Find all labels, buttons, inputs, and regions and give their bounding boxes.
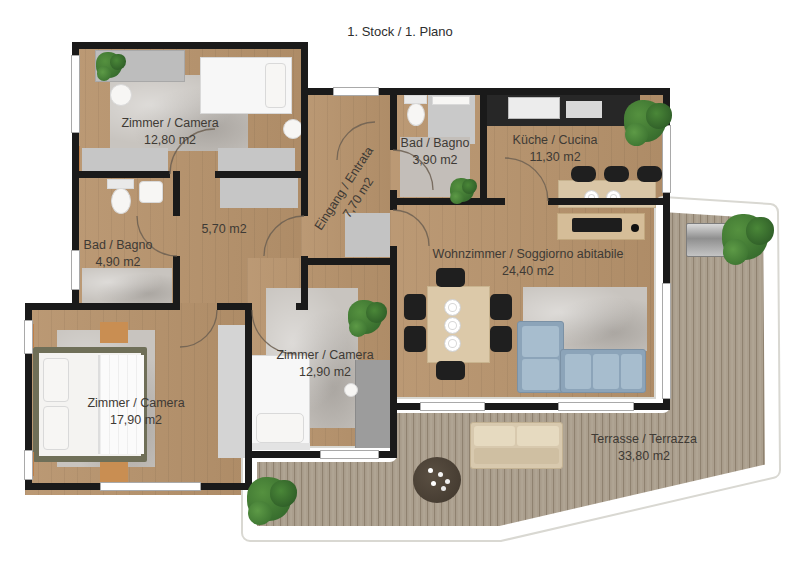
room-name: Bad / Bagno xyxy=(401,135,470,152)
plant-icon xyxy=(722,214,768,260)
room-area: 17,90 m2 xyxy=(87,411,184,428)
door-arcs xyxy=(0,0,800,565)
room-area: 12,80 m2 xyxy=(121,131,218,148)
room-name: Zimmer / Camera xyxy=(121,115,218,132)
room-area: 11,30 m2 xyxy=(513,148,598,165)
room-label-bad-west: Bad / Bagno 4,90 m2 xyxy=(84,237,153,270)
room-label-zimmer-mitte: Zimmer / Camera 12,90 m2 xyxy=(276,347,373,380)
room-area: 4,90 m2 xyxy=(84,253,153,270)
plant-icon xyxy=(247,477,291,521)
room-label-bad-nord: Bad / Bagno 3,90 m2 xyxy=(401,135,470,168)
room-label-flur: 5,70 m2 xyxy=(201,221,246,238)
door-arc xyxy=(393,210,429,246)
room-area: 12,90 m2 xyxy=(276,363,373,380)
room-label-kueche: Küche / Cucina 11,30 m2 xyxy=(513,132,598,165)
door-arc xyxy=(264,216,304,256)
room-area: 3,90 m2 xyxy=(401,151,470,168)
room-name: Terrasse / Terrazza xyxy=(591,431,697,448)
room-name: Küche / Cucina xyxy=(513,132,598,149)
door-arc xyxy=(180,310,217,347)
room-area: 24,40 m2 xyxy=(433,262,624,279)
room-label-terrasse: Terrasse / Terrazza 33,80 m2 xyxy=(591,431,697,464)
room-label-zimmer-sw: Zimmer / Camera 17,90 m2 xyxy=(87,395,184,428)
room-area: 33,80 m2 xyxy=(591,447,697,464)
room-area: 5,70 m2 xyxy=(201,221,246,238)
room-name: Bad / Bagno xyxy=(84,237,153,254)
room-name: Wohnzimmer / Soggiorno abitabile xyxy=(433,246,624,263)
room-name: Zimmer / Camera xyxy=(87,395,184,412)
plant-icon xyxy=(450,178,474,202)
plant-icon xyxy=(96,52,122,78)
room-label-wohnzimmer: Wohnzimmer / Soggiorno abitabile 24,40 m… xyxy=(433,246,624,279)
room-label-zimmer-nw: Zimmer / Camera 12,80 m2 xyxy=(121,115,218,148)
plant-icon xyxy=(624,100,666,142)
plant-icon xyxy=(348,300,382,334)
floor-plan: 1. Stock / 1. Plano xyxy=(0,0,800,565)
room-name: Zimmer / Camera xyxy=(276,347,373,364)
